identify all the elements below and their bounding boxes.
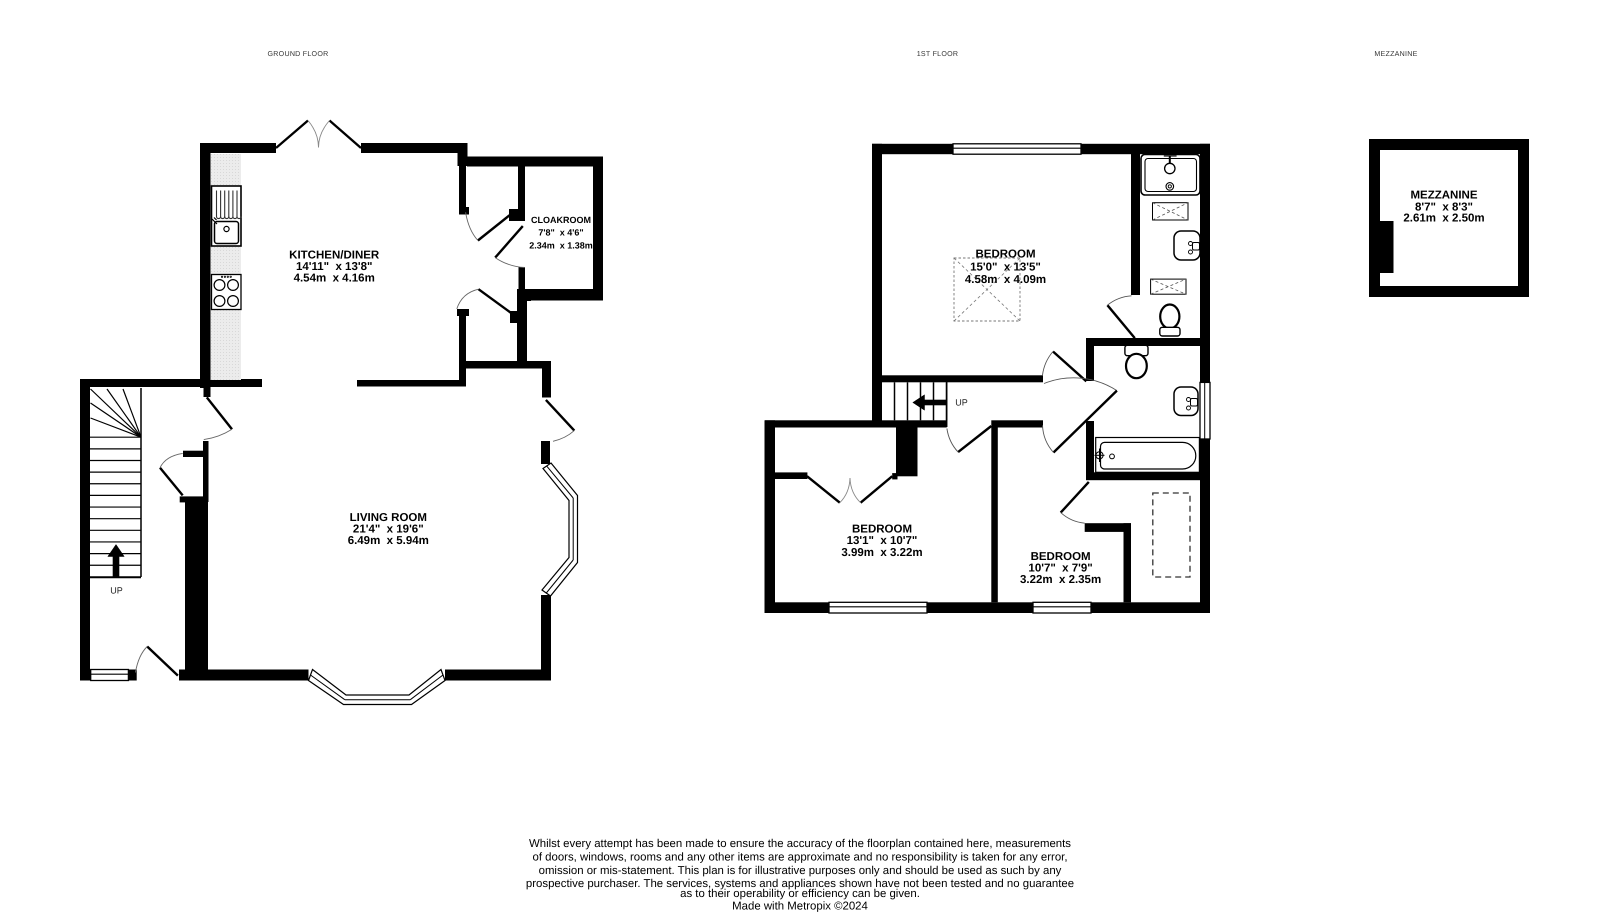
svg-text:UP: UP [955, 397, 968, 407]
svg-text:4.58m x 4.09m: 4.58m x 4.09m [965, 274, 1046, 286]
svg-text:4.54m x 4.16m: 4.54m x 4.16m [294, 273, 375, 285]
svg-text:2.34m x 1.38m: 2.34m x 1.38m [529, 240, 593, 250]
svg-text:Whilst every attempt has been: Whilst every attempt has been made to en… [529, 838, 1071, 850]
svg-text:omission or mis-statement. Thi: omission or mis-statement. This plan is … [539, 865, 1062, 877]
svg-text:8'7" x 8'3": 8'7" x 8'3" [1415, 201, 1473, 213]
svg-text:KITCHEN/DINER: KITCHEN/DINER [289, 250, 380, 262]
svg-text:of doors, windows, rooms and a: of doors, windows, rooms and any other i… [533, 851, 1068, 863]
svg-text:MEZZANINE: MEZZANINE [1410, 190, 1477, 202]
svg-text:3.22m x 2.35m: 3.22m x 2.35m [1020, 574, 1101, 586]
svg-text:6.49m x 5.94m: 6.49m x 5.94m [348, 535, 429, 547]
svg-text:UP: UP [110, 586, 123, 596]
svg-text:3.99m x 3.22m: 3.99m x 3.22m [841, 547, 922, 559]
svg-text:7'8" x 4'6": 7'8" x 4'6" [538, 227, 583, 237]
svg-text:as to their operability or eff: as to their operability or efficiency ca… [680, 888, 920, 900]
svg-text:13'1" x 10'7": 13'1" x 10'7" [847, 535, 918, 547]
svg-text:LIVING ROOM: LIVING ROOM [350, 512, 427, 524]
svg-text:Made with Metropix ©2024: Made with Metropix ©2024 [732, 901, 868, 912]
svg-text:21'4" x 19'6": 21'4" x 19'6" [353, 523, 424, 535]
svg-text:2.61m x 2.50m: 2.61m x 2.50m [1403, 213, 1484, 225]
svg-text:MEZZANINE: MEZZANINE [1374, 50, 1417, 58]
svg-text:BEDROOM: BEDROOM [975, 248, 1035, 260]
svg-text:1ST FLOOR: 1ST FLOOR [917, 50, 959, 58]
svg-text:10'7" x 7'9": 10'7" x 7'9" [1028, 562, 1092, 574]
svg-text:15'0" x 13'5": 15'0" x 13'5" [970, 261, 1041, 273]
svg-text:BEDROOM: BEDROOM [1031, 551, 1091, 563]
svg-text:14'11" x 13'8": 14'11" x 13'8" [296, 261, 373, 273]
svg-text:CLOAKROOM: CLOAKROOM [531, 215, 591, 225]
svg-text:GROUND FLOOR: GROUND FLOOR [268, 50, 329, 58]
svg-text:BEDROOM: BEDROOM [852, 524, 912, 536]
